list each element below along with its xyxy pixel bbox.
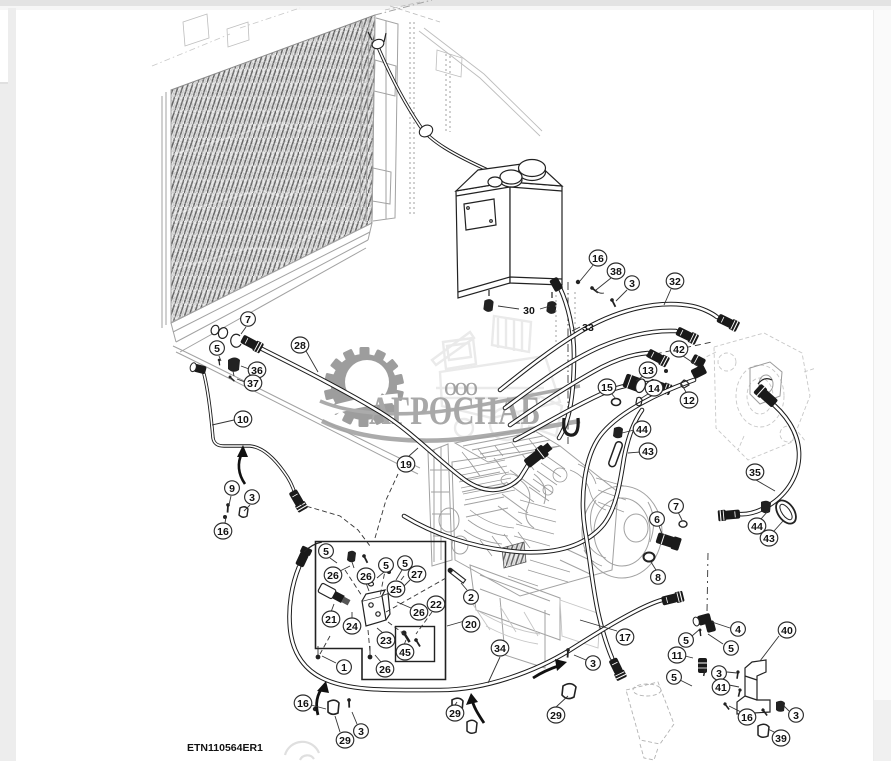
svg-text:3: 3 xyxy=(716,668,722,680)
svg-text:44: 44 xyxy=(636,424,648,436)
svg-text:3: 3 xyxy=(249,492,255,504)
svg-text:11: 11 xyxy=(671,650,682,662)
svg-text:41: 41 xyxy=(715,682,727,694)
svg-text:17: 17 xyxy=(619,632,631,644)
svg-text:29: 29 xyxy=(449,708,461,720)
svg-text:37: 37 xyxy=(247,378,259,390)
svg-text:8: 8 xyxy=(655,572,661,584)
svg-text:3: 3 xyxy=(590,658,596,670)
svg-text:2: 2 xyxy=(468,592,474,604)
svg-text:АГРОСНАБ: АГРОСНАБ xyxy=(369,388,540,433)
svg-text:30: 30 xyxy=(523,305,535,317)
svg-text:5: 5 xyxy=(383,560,389,572)
svg-text:4: 4 xyxy=(735,624,741,636)
svg-text:3: 3 xyxy=(793,710,799,722)
svg-text:15: 15 xyxy=(601,382,613,394)
svg-text:5: 5 xyxy=(214,343,220,355)
svg-text:5: 5 xyxy=(323,546,329,558)
svg-text:21: 21 xyxy=(325,614,337,626)
svg-text:28: 28 xyxy=(294,340,306,352)
svg-text:16: 16 xyxy=(297,698,309,710)
svg-text:40: 40 xyxy=(781,625,793,637)
svg-text:29: 29 xyxy=(339,735,351,747)
svg-text:43: 43 xyxy=(642,446,654,458)
svg-text:45: 45 xyxy=(399,647,411,659)
svg-text:33: 33 xyxy=(582,322,594,334)
svg-text:38: 38 xyxy=(610,266,622,278)
svg-text:22: 22 xyxy=(430,599,442,611)
svg-text:27: 27 xyxy=(411,569,423,581)
svg-text:6: 6 xyxy=(654,514,660,526)
svg-text:16: 16 xyxy=(741,712,753,724)
svg-text:3: 3 xyxy=(358,726,364,738)
svg-text:16: 16 xyxy=(592,253,604,265)
svg-text:16: 16 xyxy=(217,526,229,538)
svg-text:39: 39 xyxy=(775,733,787,745)
svg-text:44: 44 xyxy=(751,521,763,533)
svg-text:5: 5 xyxy=(728,643,734,655)
svg-text:42: 42 xyxy=(673,344,685,356)
svg-text:14: 14 xyxy=(648,383,660,395)
svg-text:7: 7 xyxy=(673,501,679,513)
svg-text:12: 12 xyxy=(683,395,695,407)
svg-text:5: 5 xyxy=(402,558,408,570)
svg-text:13: 13 xyxy=(642,365,654,377)
svg-text:23: 23 xyxy=(380,635,392,647)
svg-text:9: 9 xyxy=(229,483,235,495)
svg-text:5: 5 xyxy=(671,672,677,684)
svg-text:26: 26 xyxy=(327,570,339,582)
svg-text:25: 25 xyxy=(390,584,402,596)
svg-text:26: 26 xyxy=(360,571,372,583)
svg-text:35: 35 xyxy=(749,467,761,479)
svg-text:19: 19 xyxy=(400,459,412,471)
svg-text:7: 7 xyxy=(245,314,251,326)
svg-text:26: 26 xyxy=(379,664,391,676)
svg-text:1: 1 xyxy=(341,662,347,674)
svg-text:34: 34 xyxy=(494,643,506,655)
svg-text:20: 20 xyxy=(465,619,477,631)
svg-text:3: 3 xyxy=(629,278,635,290)
svg-text:5: 5 xyxy=(683,635,689,647)
svg-text:32: 32 xyxy=(669,276,681,288)
svg-text:10: 10 xyxy=(237,414,249,426)
svg-text:43: 43 xyxy=(763,533,775,545)
svg-text:24: 24 xyxy=(346,621,358,633)
svg-text:ETN110564ER1: ETN110564ER1 xyxy=(187,742,263,754)
svg-text:26: 26 xyxy=(413,607,425,619)
svg-text:29: 29 xyxy=(550,710,562,722)
